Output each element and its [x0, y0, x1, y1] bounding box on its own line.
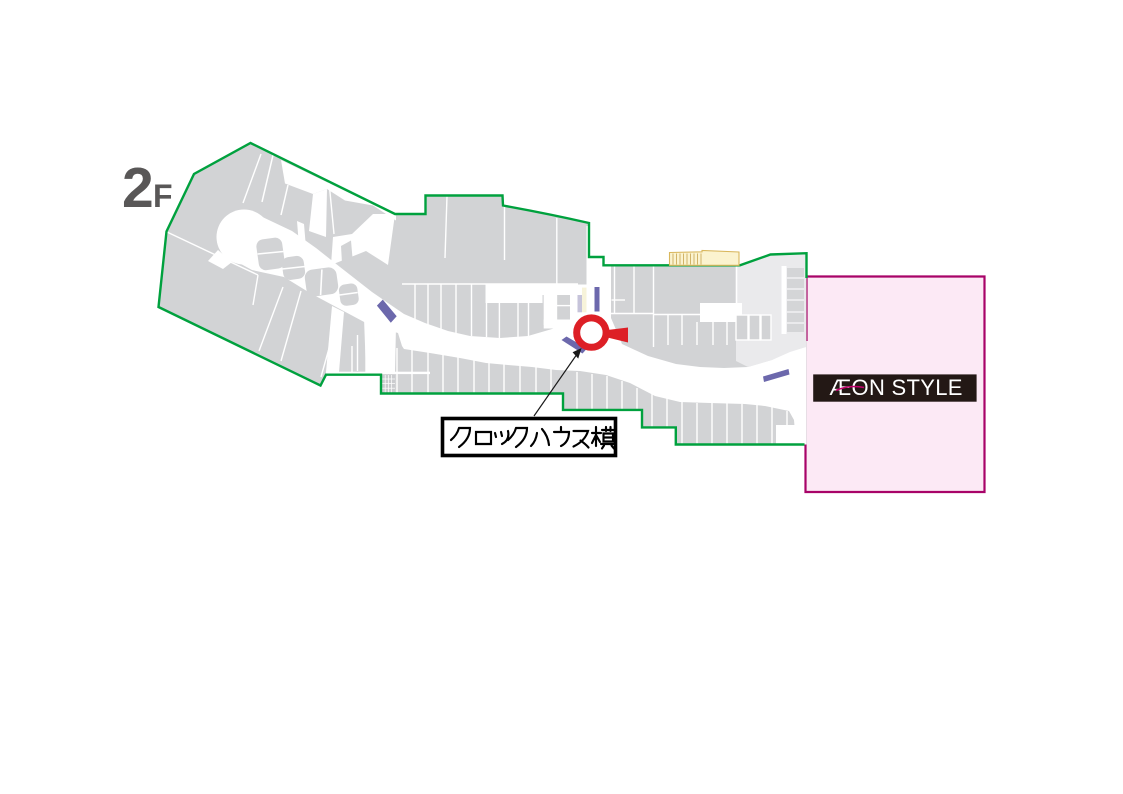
svg-text:ÆON STYLE: ÆON STYLE — [829, 375, 963, 400]
svg-text:F: F — [153, 178, 173, 214]
svg-text:2: 2 — [122, 156, 154, 220]
